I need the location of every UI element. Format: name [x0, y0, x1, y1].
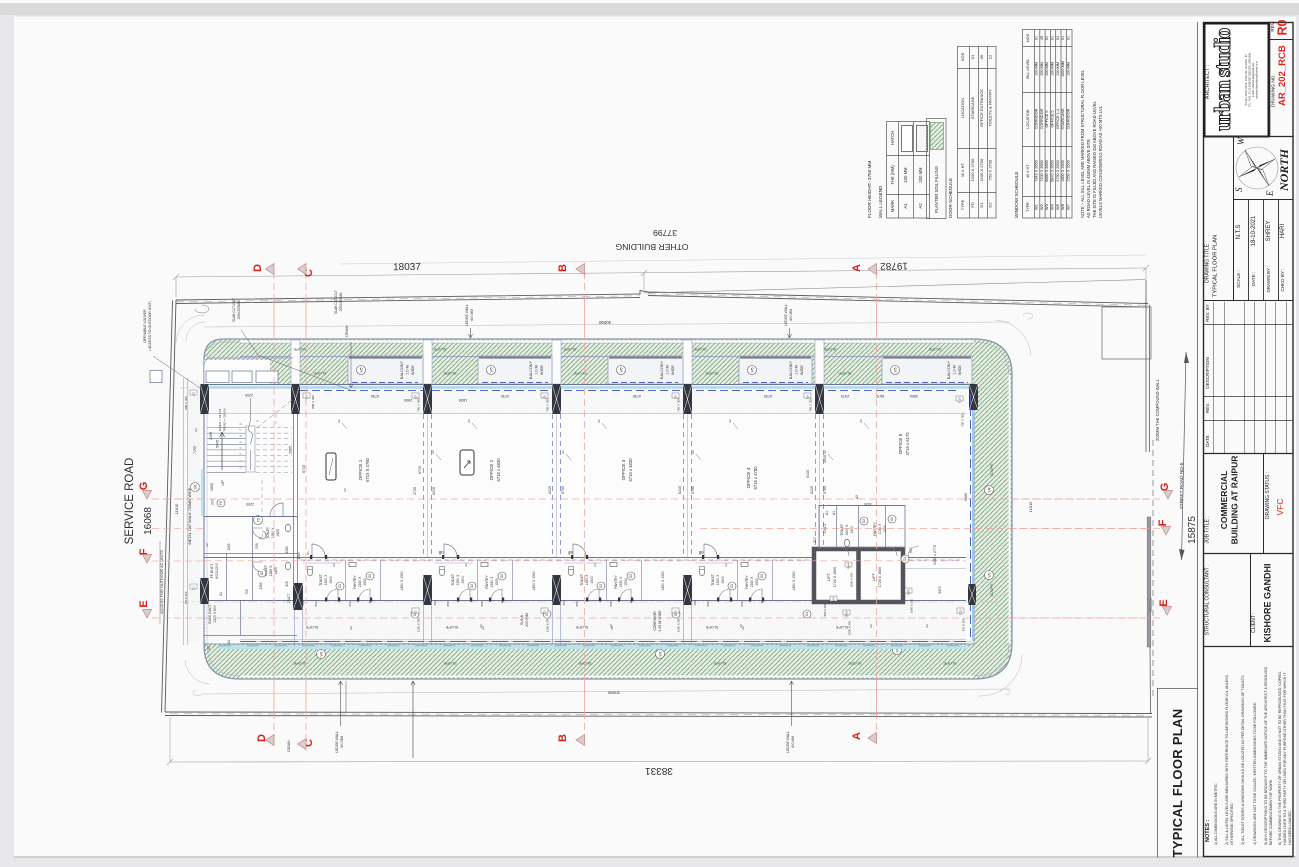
svg-text:W7: W7 [1066, 204, 1070, 210]
svg-text:A2: A2 [431, 450, 435, 454]
svg-text:OFFICE 1: OFFICE 1 [358, 459, 363, 480]
svg-text:W2: W2 [658, 651, 662, 656]
svg-text:38331: 38331 [645, 765, 673, 776]
svg-text:C10: C10 [958, 397, 962, 403]
svg-text:5765: 5765 [561, 486, 565, 494]
svg-text:BEFORE COMMENCEMENT OF WORK: BEFORE COMMENCEMENT OF WORK [1269, 779, 1273, 845]
svg-text:OFFICE 5: OFFICE 5 [1045, 110, 1049, 127]
svg-text:NOS: NOS [1026, 33, 1030, 42]
svg-text:1100 X 2700: 1100 X 2700 [979, 158, 984, 181]
svg-text:STRUCTURAL CONSULTANT :: STRUCTURAL CONSULTANT : [1205, 565, 1211, 636]
svg-text:1265: 1265 [227, 543, 231, 550]
svg-text:A2: A2 [207, 646, 211, 650]
svg-text:1530: 1530 [363, 578, 367, 586]
svg-text:5670: 5670 [876, 394, 884, 398]
svg-text:SLOPE: SLOPE [563, 347, 577, 352]
svg-text:5765: 5765 [691, 486, 695, 494]
svg-text:4715 x 6170: 4715 x 6170 [905, 432, 910, 456]
svg-text:W5: W5 [750, 367, 754, 372]
svg-text:D2: D2 [338, 584, 342, 588]
svg-text:FD: FD [970, 202, 975, 207]
svg-text:2) SILL & LINTEL LEVELS ARE ME: 2) SILL & LINTEL LEVELS ARE MEASURED WIT… [1225, 674, 1229, 845]
svg-text:01: 01 [1066, 36, 1070, 40]
svg-text:1500: 1500 [329, 576, 333, 584]
svg-text:1200 X 2700: 1200 X 2700 [970, 158, 975, 181]
svg-text:1280: 1280 [285, 546, 289, 553]
svg-text:HANDED OVER TO A THIRD PARTY O: HANDED OVER TO A THIRD PARTY OR USED FOR… [1283, 672, 1287, 845]
svg-text:5765: 5765 [823, 486, 827, 494]
svg-text:W6: W6 [1061, 204, 1065, 210]
svg-text:BALCONY: BALCONY [400, 360, 404, 379]
svg-text:01: 01 [1051, 36, 1055, 40]
svg-text:TOILET: TOILET [266, 527, 270, 539]
svg-text:TOILET: TOILET [319, 574, 323, 586]
svg-text:W4: W4 [1051, 204, 1055, 210]
svg-text:6715 x 4780: 6715 x 4780 [753, 466, 758, 490]
svg-text:100 MM: 100 MM [903, 167, 908, 183]
svg-text:2200: 2200 [245, 393, 253, 397]
svg-text:A2: A2 [337, 419, 341, 423]
svg-text:30090: 30090 [598, 320, 611, 325]
svg-text:1.0 M: 1.0 M [953, 365, 957, 375]
svg-text:3430: 3430 [864, 502, 872, 506]
svg-text:SLOPE: SLOPE [848, 661, 862, 666]
svg-text:OFFICE 2: OFFICE 2 [489, 459, 494, 480]
svg-text:G: G [138, 482, 150, 491]
svg-text:LEVELS MARKED CONSIDERING ROAD: LEVELS MARKED CONSIDERING ROAD AS +00 MT… [1098, 105, 1103, 218]
svg-text:A1: A1 [227, 640, 231, 644]
svg-text:2370: 2370 [841, 394, 849, 398]
svg-text:FD: FD [256, 517, 260, 522]
svg-text:A1: A1 [825, 511, 829, 515]
svg-text:2900: 2900 [404, 398, 412, 402]
svg-text:850: 850 [314, 601, 318, 606]
svg-text:200 MM: 200 MM [525, 613, 529, 627]
svg-text:A2: A2 [349, 626, 353, 630]
svg-text:LEDGE WALL: LEDGE WALL [786, 731, 790, 753]
svg-text:B: B [557, 734, 569, 742]
svg-text:D1: D1 [903, 557, 907, 561]
svg-text:400 MM: 400 MM [470, 309, 474, 321]
svg-text:1200: 1200 [297, 552, 301, 559]
svg-text:THK (MM): THK (MM) [890, 165, 895, 185]
svg-text:A1: A1 [903, 203, 908, 209]
svg-text:750 X 300: 750 X 300 [962, 618, 966, 631]
svg-text:SLOPE: SLOPE [823, 347, 837, 352]
svg-text:A: A [851, 732, 863, 740]
svg-text:G: G [1159, 483, 1171, 492]
svg-text:6715: 6715 [418, 466, 422, 474]
svg-text:LEDGE WALL: LEDGE WALL [335, 731, 339, 753]
svg-text:SLOPE: SLOPE [313, 371, 327, 376]
svg-text:6885: 6885 [964, 493, 968, 501]
svg-text:19782: 19782 [880, 260, 908, 271]
svg-text:REV.: REV. [1270, 21, 1275, 31]
svg-text:A2: A2 [691, 450, 695, 454]
svg-text:200MM THK COMPOUND WALL: 200MM THK COMPOUND WALL [1155, 378, 1160, 441]
svg-text:PANTRY: PANTRY [353, 575, 357, 589]
svg-text:1950 X 200: 1950 X 200 [848, 620, 852, 635]
svg-text:1350 X: 1350 X [358, 576, 362, 587]
svg-text:DRAWING NO.: DRAWING NO. [1271, 74, 1277, 107]
svg-text:30090: 30090 [607, 690, 620, 695]
svg-text:N.T.S: N.T.S [1236, 225, 1242, 240]
svg-text:R0: R0 [1276, 19, 1290, 35]
svg-text:BALCONY: BALCONY [660, 360, 664, 379]
svg-text:200X200MM: 200X200MM [339, 292, 343, 311]
svg-text:A2: A2 [597, 419, 601, 423]
svg-text:W5: W5 [619, 367, 623, 372]
svg-text:A2: A2 [479, 624, 483, 628]
svg-text:LEDGE WALL: LEDGE WALL [465, 304, 469, 326]
svg-text:AS ROAD LEVEL IS 450MM ABOVE S: AS ROAD LEVEL IS 450MM ABOVE SITE [1086, 139, 1091, 218]
svg-text:1.0 M: 1.0 M [406, 365, 410, 375]
svg-text:01: 01 [970, 54, 975, 59]
svg-text:A2: A2 [343, 488, 347, 492]
svg-text:W4: W4 [987, 487, 991, 492]
svg-text:W3: W3 [987, 572, 991, 577]
svg-text:SLOPE: SLOPE [989, 583, 994, 597]
svg-text:DRAWING TITLE :: DRAWING TITLE : [1205, 241, 1211, 283]
svg-text:D2: D2 [862, 519, 866, 523]
svg-text:SILL LEVEL: SILL LEVEL [1026, 59, 1030, 80]
svg-text:SLOPE: SLOPE [293, 661, 307, 666]
svg-text:5470: 5470 [938, 586, 942, 594]
svg-text:C12: C12 [959, 609, 963, 615]
svg-text:01: 01 [1035, 36, 1039, 40]
svg-text:100 MM: 100 MM [1051, 62, 1055, 76]
svg-text:COMMERCIAL: COMMERCIAL [1219, 471, 1229, 530]
svg-text:3600 X 200: 3600 X 200 [850, 572, 854, 587]
svg-text:D1: D1 [979, 202, 984, 208]
svg-text:SLOPE: SLOPE [575, 625, 588, 629]
svg-text:650: 650 [348, 601, 352, 606]
svg-text:1800 X 1500: 1800 X 1500 [1061, 160, 1065, 182]
svg-text:LIFT: LIFT [826, 572, 831, 581]
svg-text:SLOPE: SLOPE [943, 661, 957, 666]
svg-text:1320 X 600: 1320 X 600 [213, 605, 217, 622]
svg-text:530: 530 [255, 543, 259, 549]
svg-text:SW1: SW1 [832, 597, 836, 604]
svg-text:TYPE: TYPE [1026, 202, 1030, 212]
svg-text:OFFICE 5: OFFICE 5 [1051, 110, 1055, 127]
svg-text:OFFICE ENTRANCE: OFFICE ENTRANCE [979, 89, 984, 127]
svg-text:4730: 4730 [764, 394, 772, 398]
svg-text:D2: D2 [890, 517, 894, 521]
svg-text:HATCH: HATCH [890, 131, 895, 145]
svg-text:WALL LEGEND: WALL LEGEND [878, 185, 883, 218]
svg-text:SW2: SW2 [845, 611, 849, 618]
svg-text:01: 01 [1045, 36, 1049, 40]
svg-text:CORRIDOR: CORRIDOR [653, 611, 657, 631]
svg-text:A2: A2 [823, 450, 827, 454]
svg-text:DRAWN BY :: DRAWN BY : [1266, 265, 1271, 292]
svg-text:1425: 1425 [276, 529, 280, 537]
svg-text:820: 820 [285, 581, 289, 587]
svg-text:SW5: SW5 [907, 589, 911, 596]
svg-text:SUNK: SUNK [520, 614, 524, 625]
svg-text:SLOPE: SLOPE [928, 347, 942, 352]
svg-text:FF DUCT: FF DUCT [210, 564, 214, 579]
svg-text:750 X 300: 750 X 300 [809, 398, 813, 412]
svg-text:600X1200: 600X1200 [215, 563, 219, 579]
svg-text:3450 x 2770: 3450 x 2770 [933, 545, 937, 565]
svg-text:1285: 1285 [259, 582, 263, 589]
svg-text:SLOPE: SLOPE [705, 625, 718, 629]
svg-text:OFFICE 3: OFFICE 3 [621, 459, 626, 480]
svg-text:SLAB CUT-OUT: SLAB CUT-OUT [232, 298, 236, 322]
svg-text:6215: 6215 [678, 486, 682, 494]
svg-text:400 MM: 400 MM [791, 736, 795, 748]
svg-text:C4: C4 [305, 395, 309, 399]
svg-text:WIDE: WIDE [411, 365, 415, 375]
svg-text:W5: W5 [359, 367, 363, 372]
svg-text:11815: 11815 [1028, 501, 1033, 513]
svg-text:3955: 3955 [289, 446, 293, 454]
svg-text:STAIRCASE: STAIRCASE [970, 96, 975, 119]
svg-text:STREET ROAD NO-6: STREET ROAD NO-6 [1179, 462, 1185, 509]
svg-text:750: 750 [245, 589, 249, 595]
svg-text:WINDOW SCHEDULE: WINDOW SCHEDULE [1014, 172, 1019, 218]
svg-text:DATE :: DATE : [1251, 272, 1256, 286]
svg-text:TYPE: TYPE [960, 199, 965, 210]
svg-text:SERVICE ROAD: SERVICE ROAD [124, 458, 136, 545]
svg-text:REV. BY: REV. BY [1205, 304, 1210, 322]
svg-text:6715 x 4830: 6715 x 4830 [496, 458, 501, 482]
svg-text:2150: 2150 [209, 432, 213, 440]
svg-text:5415: 5415 [806, 470, 810, 478]
svg-text:F: F [1157, 519, 1169, 526]
svg-text:A2: A2 [918, 203, 923, 209]
svg-text:1.45 M WIDE: 1.45 M WIDE [658, 610, 662, 632]
svg-text:ACCESS FOR OUTDOOR AC UNITS: ACCESS FOR OUTDOOR AC UNITS [160, 550, 164, 614]
svg-text:6715: 6715 [302, 465, 306, 473]
svg-text:100 MM: 100 MM [1056, 62, 1060, 76]
svg-text:6215: 6215 [810, 486, 814, 494]
svg-text:1425: 1425 [274, 567, 278, 575]
svg-text:12: 12 [988, 54, 993, 59]
svg-text:A2: A2 [561, 450, 565, 454]
svg-text:4730 X 2650: 4730 X 2650 [1056, 160, 1060, 182]
svg-text:A2: A2 [925, 624, 929, 628]
svg-text:AR_202_RCB: AR_202_RCB [1277, 45, 1288, 106]
svg-text:A2: A2 [205, 543, 209, 547]
svg-text:SLOPE: SLOPE [433, 347, 447, 352]
svg-text:OPENABLE LOUVER: OPENABLE LOUVER [143, 309, 147, 343]
svg-text:3915: 3915 [823, 455, 827, 463]
svg-text:300: 300 [813, 537, 817, 543]
svg-text:6665 X 2650: 6665 X 2650 [1045, 160, 1049, 182]
svg-text:DRAIN: DRAIN [287, 740, 291, 752]
svg-text:SLOPE: SLOPE [835, 625, 848, 629]
svg-text:TYPICAL FLOOR PLAN: TYPICAL FLOOR PLAN [1170, 709, 1185, 858]
svg-text:HAS BEEN LOANED.: HAS BEEN LOANED. [1288, 810, 1292, 845]
svg-text:1) ALL DIMENSIONS ARE IN METRI: 1) ALL DIMENSIONS ARE IN METRIC [1214, 783, 1218, 845]
svg-text:A2: A2 [859, 419, 863, 423]
svg-text:NOTE :- ALL SILL LEVEL ARE MA: NOTE :- ALL SILL LEVEL ARE MARKED FROM S… [1080, 69, 1085, 218]
svg-text:W2: W2 [319, 651, 323, 656]
svg-text:SLOPE: SLOPE [443, 661, 457, 666]
svg-text:SLOPE: SLOPE [443, 371, 457, 376]
svg-text:750 X 2700: 750 X 2700 [988, 159, 993, 180]
svg-text:ELEC DUCT: ELEC DUCT [208, 604, 212, 623]
svg-text:SCALE :: SCALE : [1236, 270, 1241, 288]
svg-text:D: D [252, 264, 264, 272]
svg-text:SLOPE: SLOPE [693, 347, 707, 352]
svg-text:200: 200 [211, 499, 215, 505]
svg-text:OTHER BUILDING: OTHER BUILDING [615, 242, 688, 252]
svg-text:W1: W1 [1035, 204, 1039, 210]
svg-text:990 X 200: 990 X 200 [823, 603, 827, 616]
svg-text:750 X 300: 750 X 300 [546, 398, 550, 412]
svg-text:OTHERWISE SPECIFIED: OTHERWISE SPECIFIED [1230, 803, 1234, 845]
svg-text:JOB TITLE :: JOB TITLE : [1205, 516, 1211, 543]
svg-text:PLANTER SOIL FILLING: PLANTER SOIL FILLING [934, 166, 939, 213]
svg-text:100 MM: 100 MM [1035, 62, 1039, 76]
svg-text:1720 X 1500: 1720 X 1500 [878, 567, 882, 587]
svg-text:A2: A2 [869, 624, 873, 628]
svg-text:WIDE: WIDE [800, 365, 804, 375]
svg-text:04: 04 [1056, 36, 1060, 40]
svg-text:400 MM: 400 MM [789, 309, 793, 321]
svg-text:MARK: MARK [890, 200, 895, 212]
svg-text:ARCHITECT :: ARCHITECT : [1205, 64, 1211, 99]
svg-text:01: 01 [1061, 36, 1065, 40]
svg-text:A2: A2 [739, 624, 743, 628]
svg-text:W5: W5 [893, 367, 897, 372]
svg-text:urban studio: urban studio [1210, 28, 1235, 131]
svg-text:DRAIN: DRAIN [345, 325, 349, 337]
svg-text:37799: 37799 [653, 228, 677, 238]
svg-text:CHKD BY :: CHKD BY : [1280, 269, 1285, 292]
svg-text:METAL CAT WALK 750MM WIDE: METAL CAT WALK 750MM WIDE [188, 487, 192, 544]
svg-text:1550 X 1500: 1550 X 1500 [1066, 160, 1070, 182]
svg-text:1.0 M: 1.0 M [795, 365, 799, 375]
svg-text:100 MM: 100 MM [1045, 62, 1049, 76]
svg-text:A2: A2 [194, 428, 198, 432]
svg-text:D2: D2 [988, 202, 993, 208]
svg-text:1.0 M: 1.0 M [666, 365, 670, 375]
svg-text:05: 05 [979, 54, 984, 59]
svg-text:( ACCESS TO OUTDOOR UNIT): ( ACCESS TO OUTDOOR UNIT) [148, 301, 152, 351]
svg-text:HARI: HARI [1280, 224, 1286, 239]
svg-text:4730: 4730 [501, 394, 509, 398]
svg-text:A2: A2 [728, 419, 732, 423]
svg-text:NOTES :: NOTES : [1205, 820, 1211, 842]
svg-text:REV.: REV. [1205, 403, 1210, 413]
svg-text:LOCATION: LOCATION [960, 98, 965, 118]
svg-text:W5: W5 [489, 367, 493, 372]
svg-text:900 X 300: 900 X 300 [311, 395, 315, 409]
svg-text:11815: 11815 [174, 503, 179, 515]
svg-text:6) THIS DRAWING IS THE PROPERT: 6) THIS DRAWING IS THE PROPERTY OF URBAN… [1278, 671, 1282, 845]
svg-text:4) DRAWINGS ARE NOT TO BE SCAL: 4) DRAWINGS ARE NOT TO BE SCALED, WRITTE… [1253, 702, 1257, 845]
svg-text:TYPICAL FLOOR PLAN: TYPICAL FLOOR PLAN [1213, 235, 1219, 297]
svg-text:4730: 4730 [371, 394, 379, 398]
svg-text:urbanstudioarchitects@yahoo.co: urbanstudioarchitects@yahoo.co.in [1256, 61, 1259, 99]
svg-text:1950 X 200: 1950 X 200 [910, 598, 914, 613]
svg-text:WIDE: WIDE [958, 365, 962, 375]
svg-text:BUILDING AT RAIPUR: BUILDING AT RAIPUR [1230, 456, 1240, 545]
svg-text:WIDE: WIDE [540, 365, 544, 375]
svg-text:S: S [1234, 187, 1244, 192]
svg-text:DRAWING STATUS :: DRAWING STATUS : [1265, 472, 1271, 519]
svg-text:1600 X: 1600 X [845, 524, 849, 535]
svg-text:LIFT: LIFT [871, 572, 876, 581]
svg-text:18-10-2021: 18-10-2021 [1251, 215, 1257, 246]
svg-text:NOS: NOS [960, 52, 965, 61]
svg-text:TOILETS & PANTRY: TOILETS & PANTRY [988, 89, 993, 127]
svg-text:OFFICE 5: OFFICE 5 [898, 433, 903, 454]
svg-text:3500: 3500 [910, 394, 918, 398]
svg-text:1200 X 300: 1200 X 300 [417, 617, 421, 632]
svg-text:SLAB CUT-OUT: SLAB CUT-OUT [334, 290, 338, 314]
svg-text:1285 X: 1285 X [269, 565, 273, 576]
svg-text:SW4: SW4 [847, 563, 851, 570]
svg-text:200X200MM: 200X200MM [237, 300, 241, 319]
svg-text:A1: A1 [306, 551, 310, 555]
svg-text:1800: 1800 [210, 483, 214, 491]
svg-text:BALCONY: BALCONY [947, 360, 951, 379]
svg-text:FLOOR HEIGHT:- 3750 MM: FLOOR HEIGHT:- 3750 MM [867, 161, 872, 218]
svg-text:CORRIDOR: CORRIDOR [1035, 108, 1039, 129]
svg-text:1200 X 300: 1200 X 300 [677, 617, 681, 632]
svg-text:VFC: VFC [1275, 499, 1285, 516]
svg-text:400 MM: 400 MM [340, 736, 344, 748]
svg-text:THE SITE IS FILLED AND RAISED: THE SITE IS FILLED AND RAISED 450 ABOVE … [1092, 101, 1097, 218]
svg-text:KISHORE GANDHI: KISHORE GANDHI [1263, 563, 1273, 642]
svg-text:DESCRIPTION: DESCRIPTION [1205, 357, 1210, 388]
svg-text:RISER = 163.04: RISER = 163.04 [218, 409, 222, 432]
svg-text:1200 X 300: 1200 X 300 [546, 617, 550, 632]
svg-text:750 X 300: 750 X 300 [417, 398, 421, 412]
svg-text:SLOPE: SLOPE [445, 625, 458, 629]
svg-text:B: B [557, 264, 569, 272]
svg-text:7343 X 2650: 7343 X 2650 [1035, 160, 1039, 182]
svg-text:TOILET: TOILET [840, 524, 844, 536]
svg-text:C5: C5 [543, 610, 547, 614]
svg-text:C5: C5 [674, 610, 678, 614]
svg-text:W2: W2 [1040, 204, 1044, 210]
svg-text:16068: 16068 [143, 507, 154, 535]
svg-text:6715 X 4780: 6715 X 4780 [365, 457, 370, 481]
svg-text:1.0 M: 1.0 M [535, 365, 539, 375]
svg-text:A2: A2 [467, 419, 471, 423]
svg-text:A2: A2 [609, 624, 613, 628]
svg-text:STAIRCASE: STAIRCASE [1061, 108, 1065, 130]
svg-text:18037: 18037 [393, 262, 421, 273]
svg-text:E: E [138, 600, 150, 607]
svg-text:4730: 4730 [633, 394, 641, 398]
svg-text:DUCT: DUCT [287, 594, 291, 603]
svg-text:W X HT: W X HT [960, 162, 965, 177]
svg-text:750 X 300: 750 X 300 [677, 398, 681, 412]
svg-text:2200: 2200 [246, 502, 254, 506]
svg-text:CORRIDOR: CORRIDOR [1066, 108, 1070, 129]
svg-text:DOOR SCHEDULE: DOOR SCHEDULE [948, 178, 953, 218]
svg-text:1000 MM: 1000 MM [1061, 61, 1065, 77]
svg-text:E: E [1265, 190, 1275, 197]
svg-text:LOCATION: LOCATION [1026, 109, 1030, 128]
svg-text:SLOPE: SLOPE [713, 661, 727, 666]
svg-text:5645: 5645 [216, 440, 220, 448]
svg-text:6715 x 4830: 6715 x 4830 [628, 458, 633, 482]
svg-text:SLOPE: SLOPE [838, 371, 852, 376]
svg-text:DATE: DATE [1205, 435, 1210, 447]
svg-text:3) ALL TOILET DOORS & WINDOWS: 3) ALL TOILET DOORS & WINDOWS SHOULD BE … [1241, 675, 1245, 845]
svg-text:A2: A2 [855, 495, 859, 499]
svg-text:A1: A1 [332, 563, 336, 567]
